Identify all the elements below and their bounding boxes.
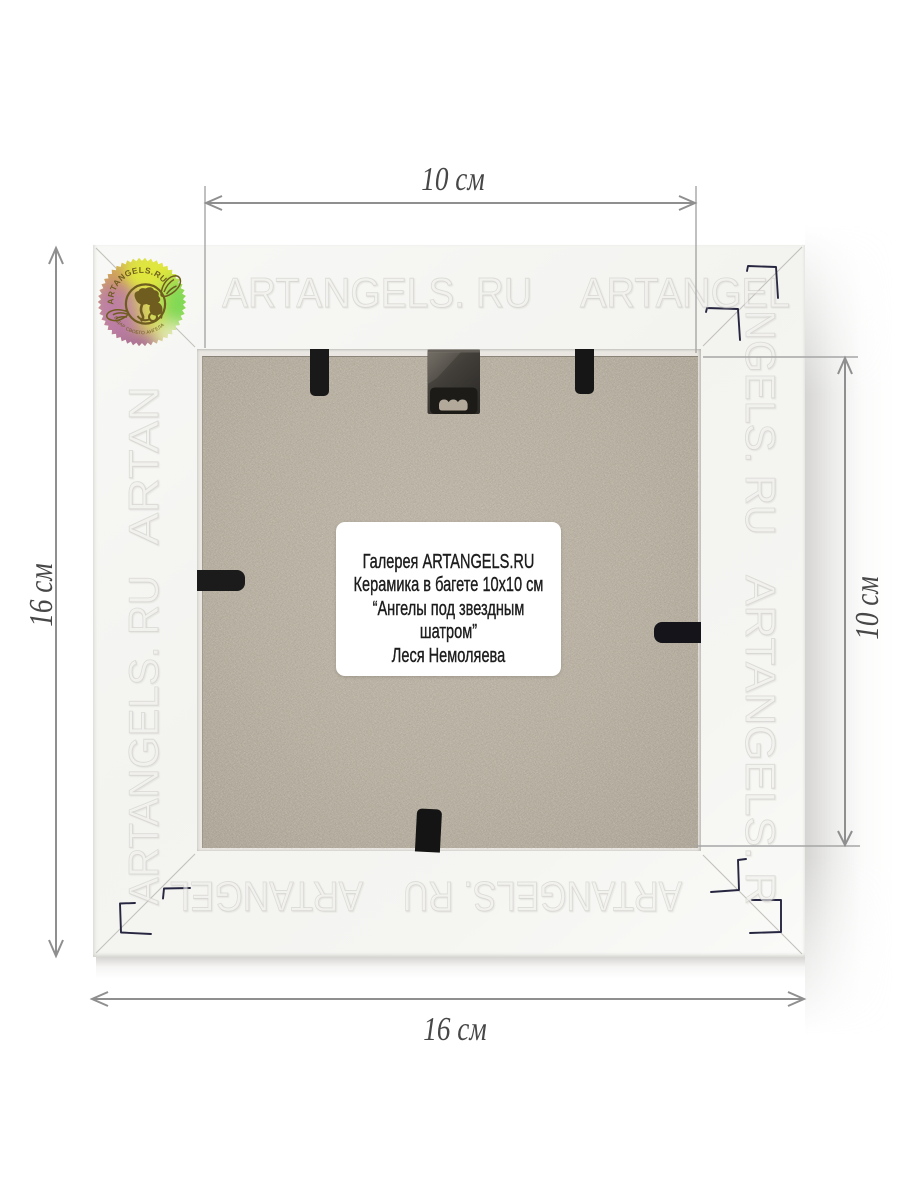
- svg-text:ARTANGELS. RU: ARTANGELS. RU: [222, 270, 532, 316]
- svg-text:ARTANGELS. RU: ARTANGELS. RU: [403, 872, 682, 918]
- svg-text:ARTAN: ARTAN: [121, 386, 167, 545]
- svg-text:ARTANGELS. RU: ARTANGELS. RU: [121, 575, 167, 905]
- svg-text:10 см: 10 см: [848, 576, 886, 639]
- svg-text:16 см: 16 см: [423, 1010, 486, 1048]
- svg-text:10 см: 10 см: [421, 160, 484, 198]
- svg-text:ARTANGEL: ARTANGEL: [170, 872, 363, 918]
- svg-text:ARTANGELS. R: ARTANGELS. R: [736, 575, 782, 905]
- svg-text:16 см: 16 см: [22, 563, 60, 626]
- svg-text:NGELS. RU: NGELS. RU: [736, 310, 782, 535]
